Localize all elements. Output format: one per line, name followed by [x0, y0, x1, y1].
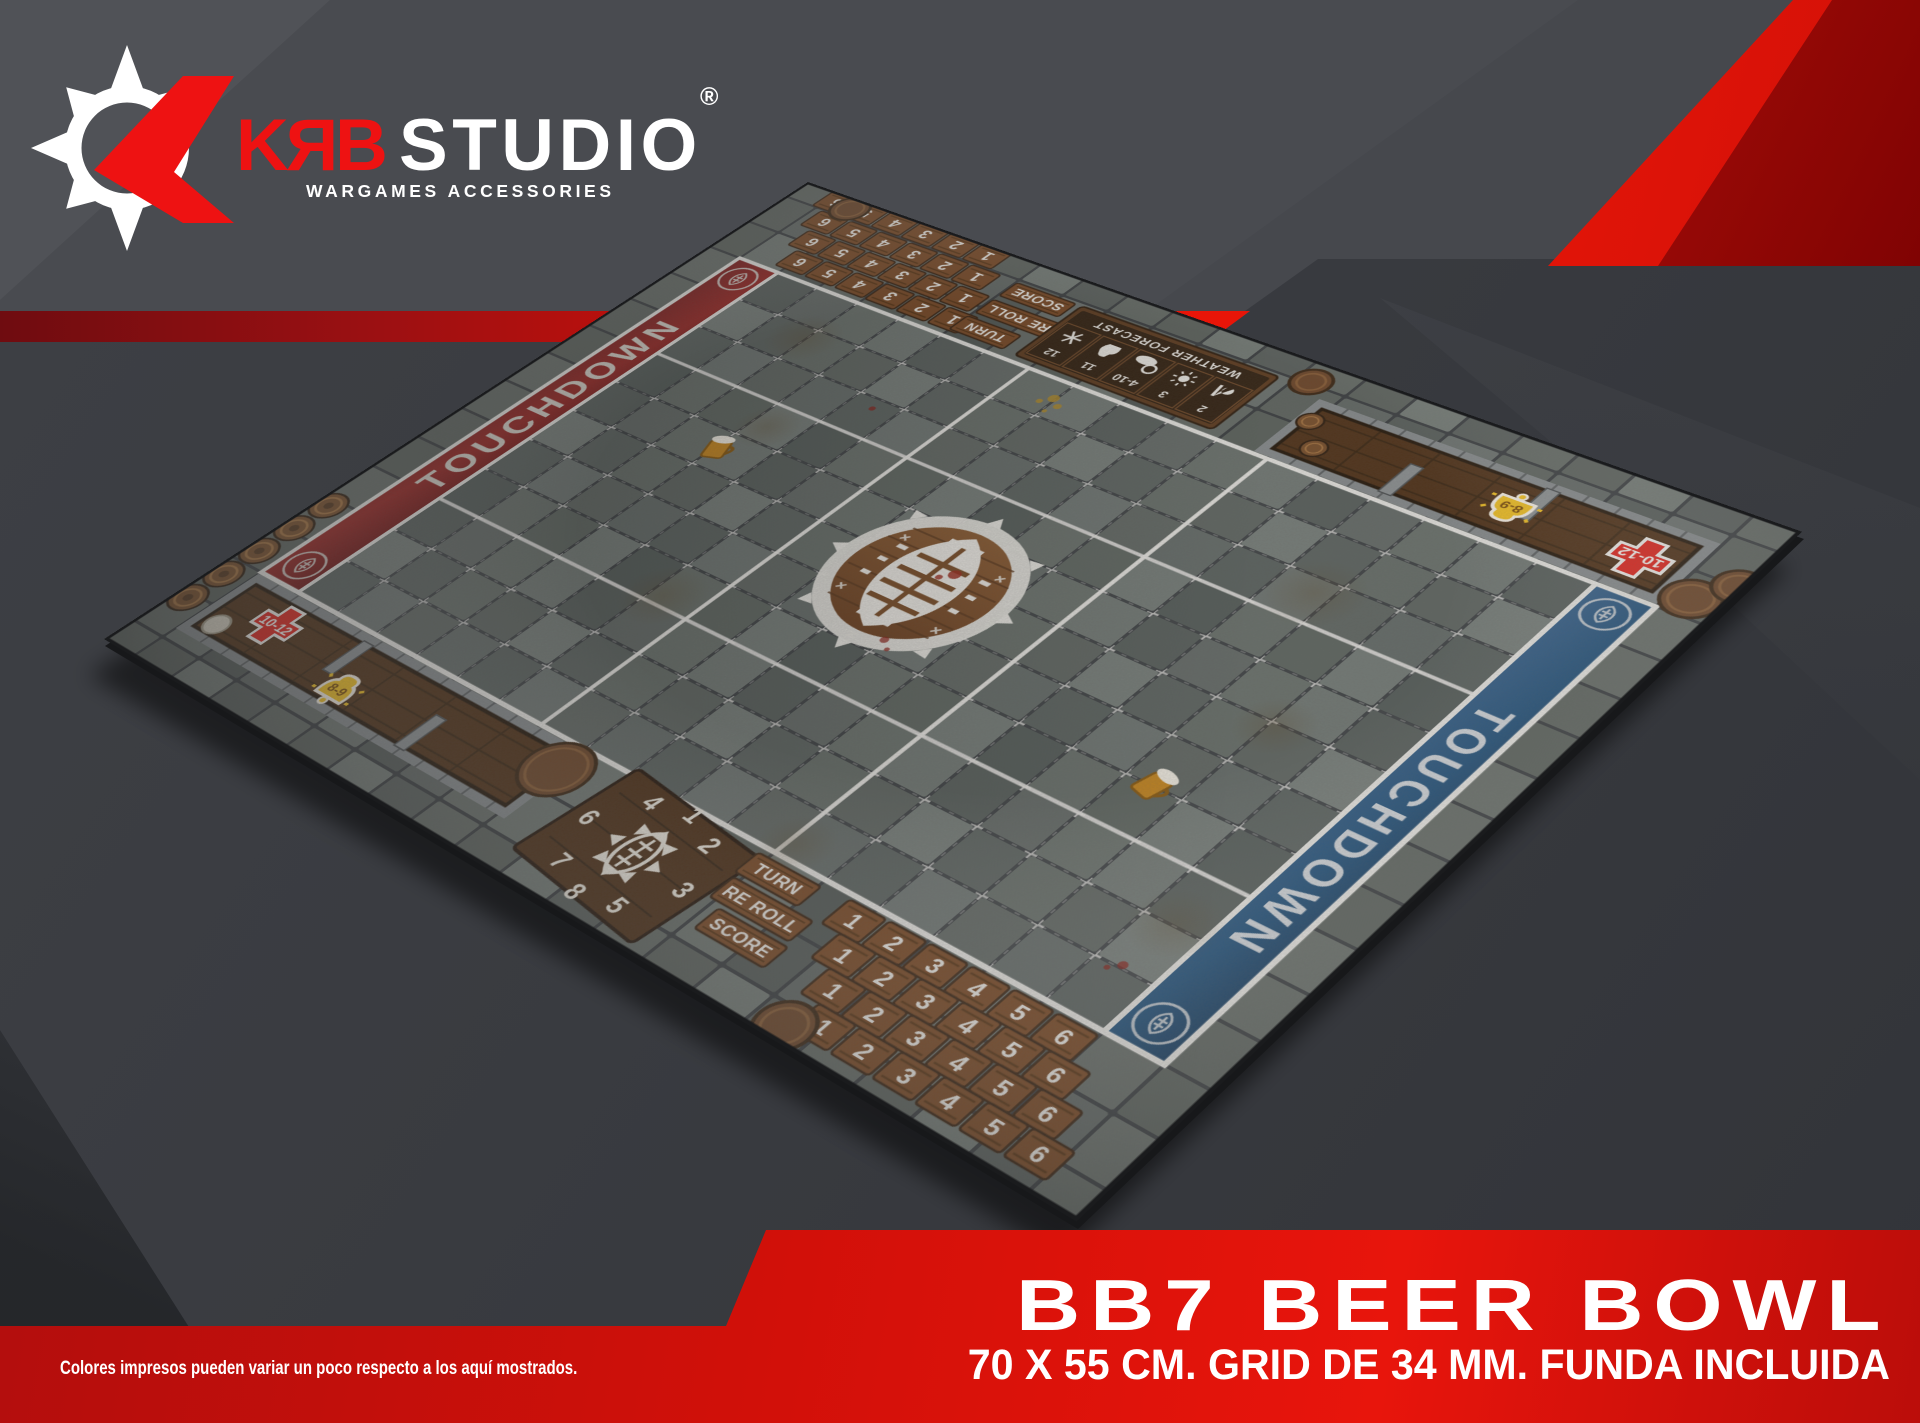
svg-text:WARGAMES ACCESSORIES: WARGAMES ACCESSORIES	[306, 181, 615, 201]
svg-text:®: ®	[700, 83, 719, 111]
svg-text:STUDIO: STUDIO	[399, 105, 702, 186]
svg-text:KЯB: KЯB	[236, 105, 385, 186]
